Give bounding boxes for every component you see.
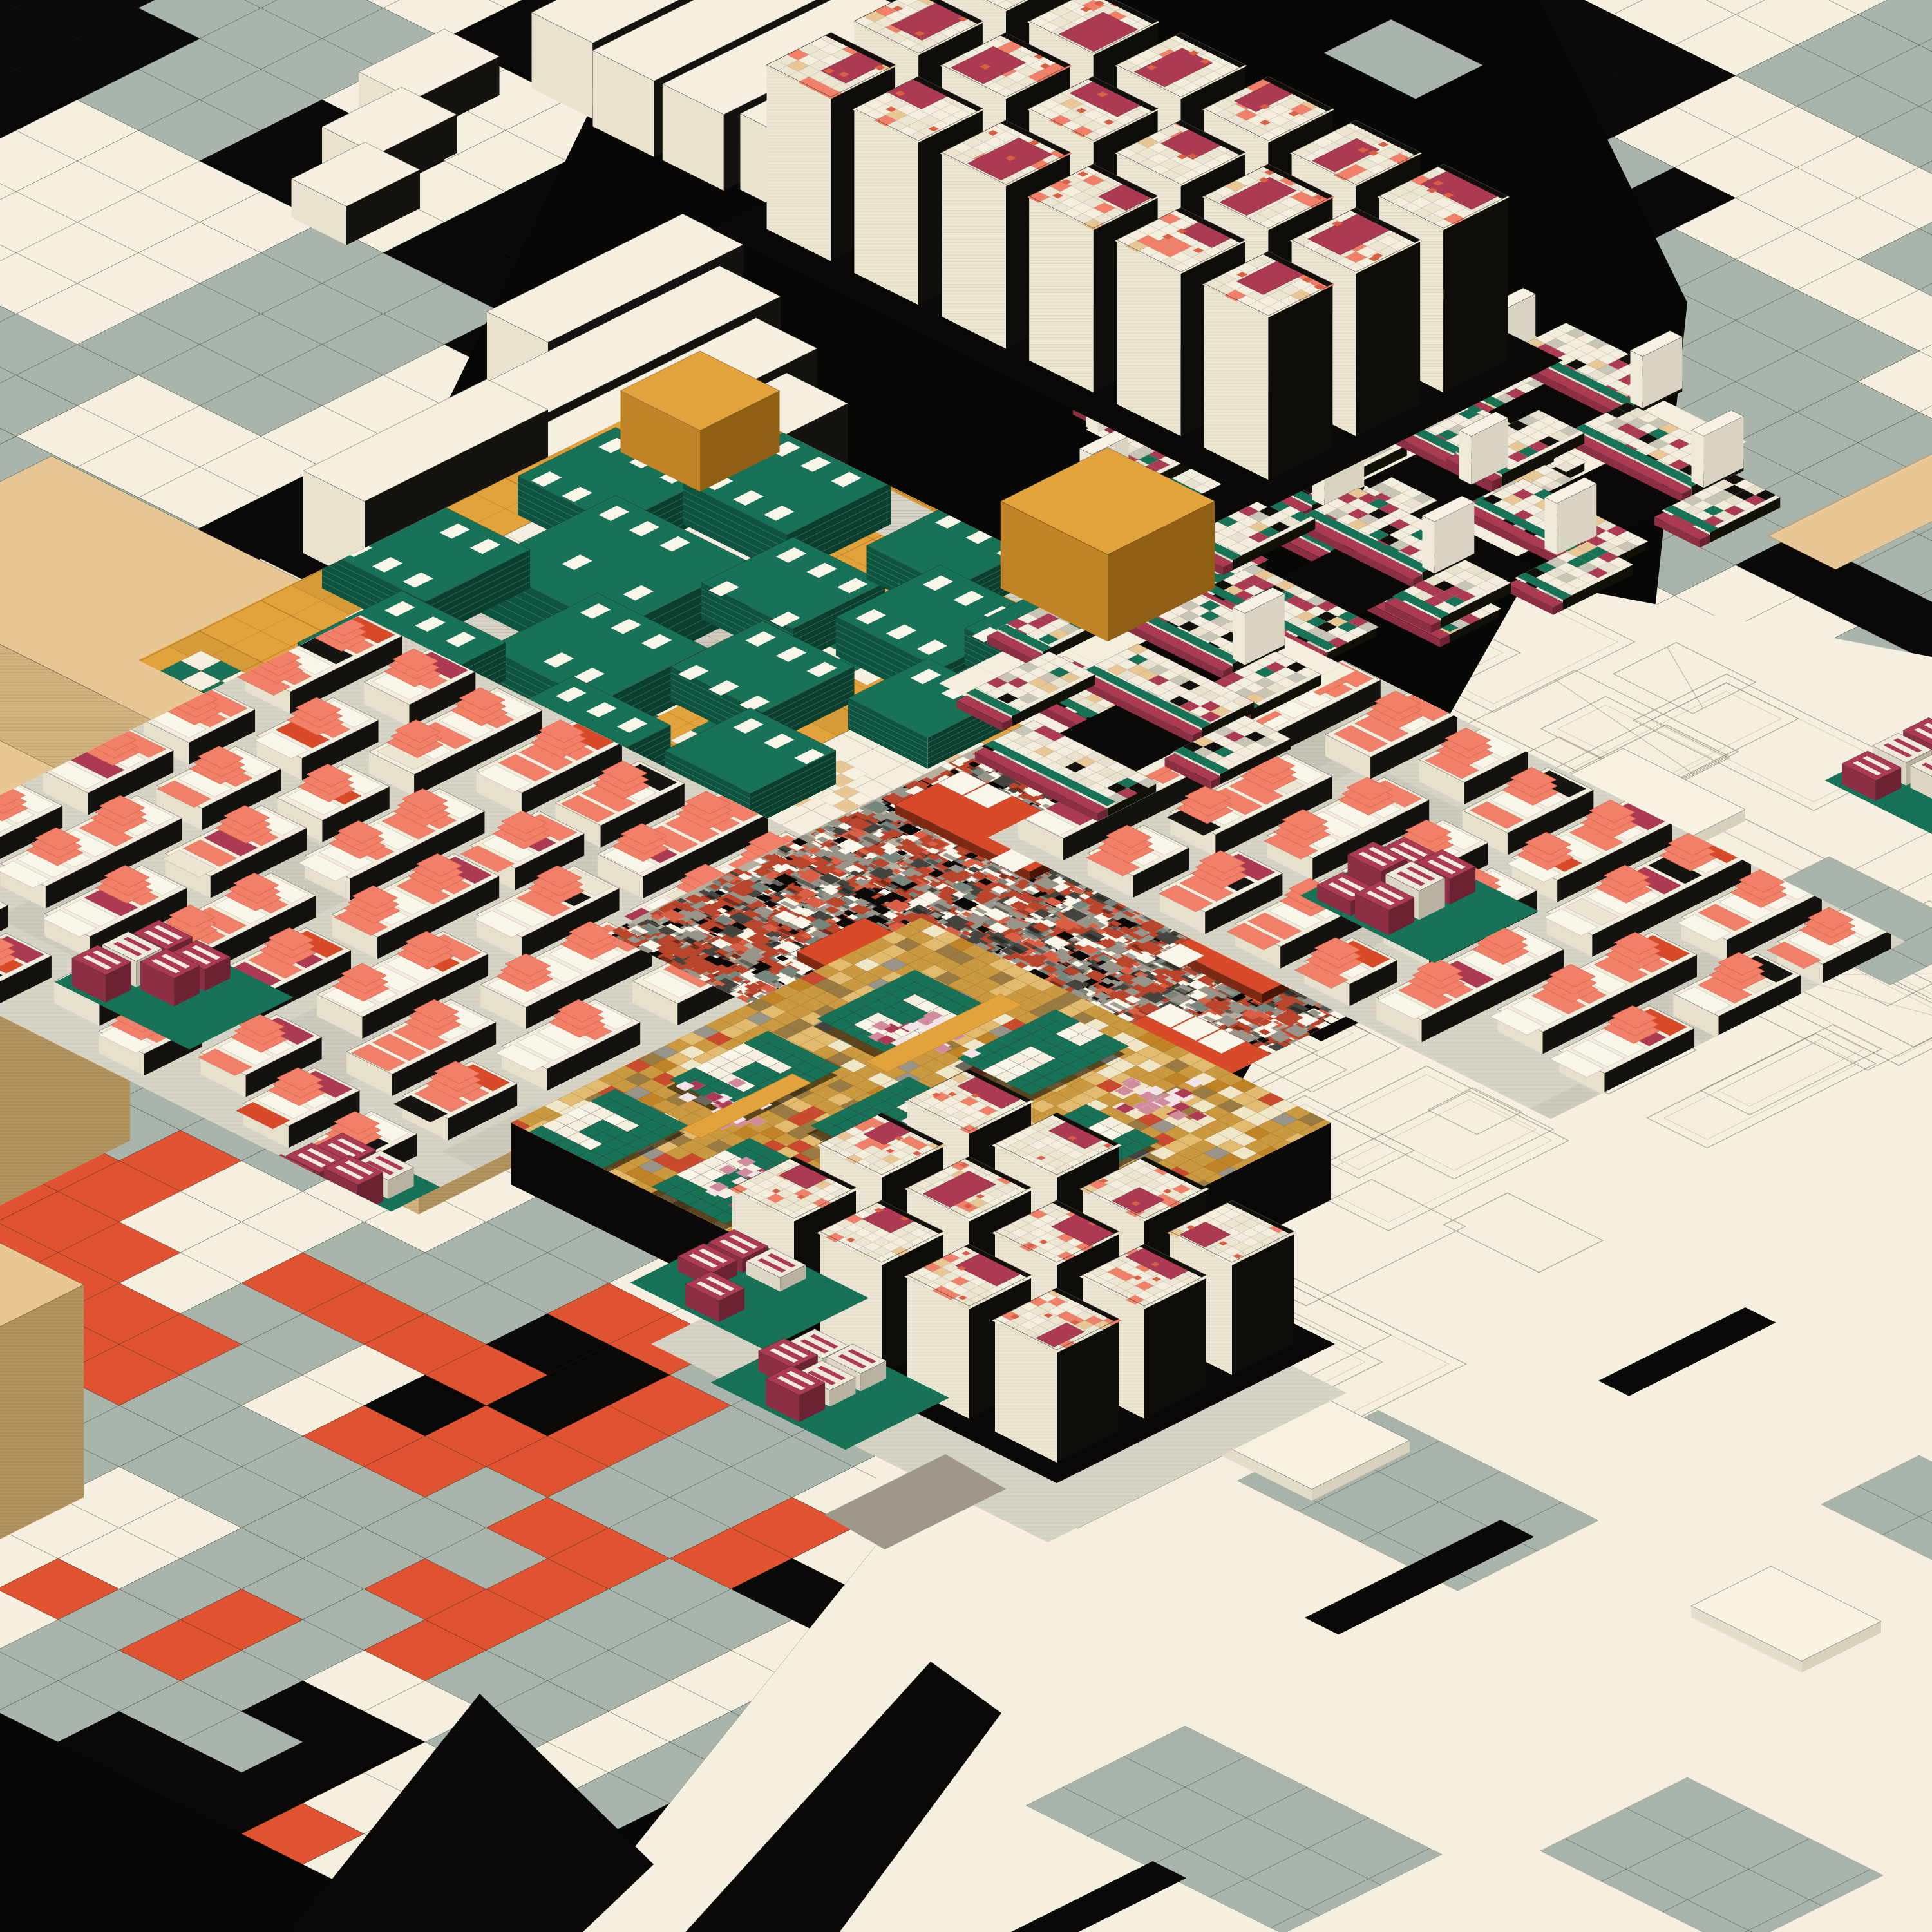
- artwork-stage: [0, 0, 1932, 1932]
- isometric-generative-artwork: [0, 0, 1932, 1932]
